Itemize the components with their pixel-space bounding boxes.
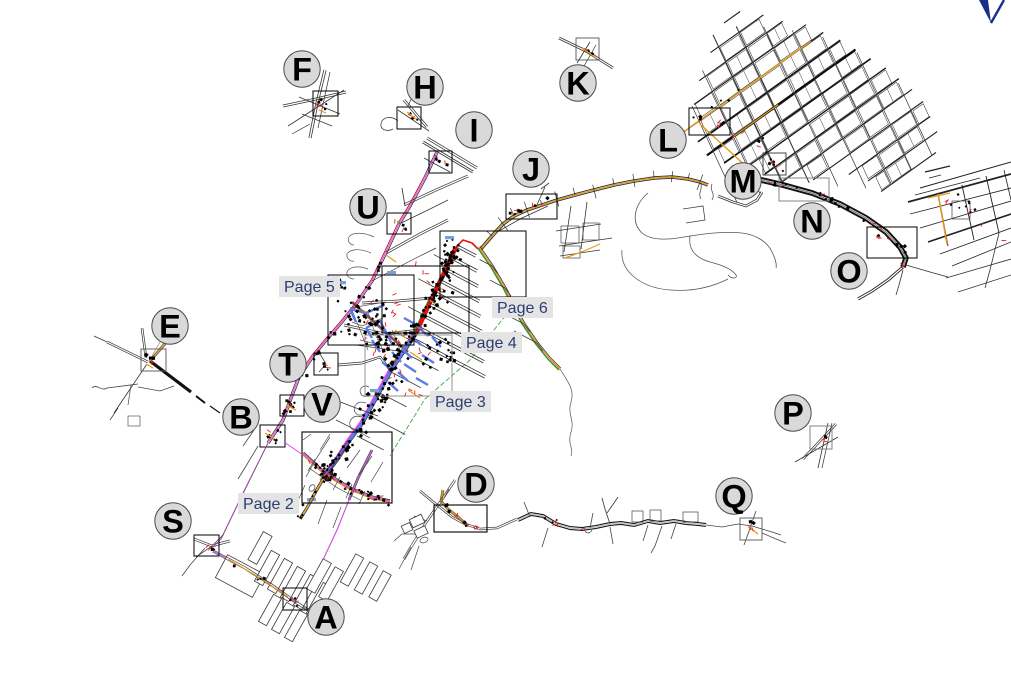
svg-text:H: H [413, 70, 436, 106]
svg-text:N: N [800, 204, 823, 240]
svg-text:D: D [464, 467, 487, 503]
svg-text:V: V [311, 387, 333, 423]
svg-text:B: B [229, 400, 252, 436]
svg-text:Page 4: Page 4 [466, 335, 517, 352]
svg-text:S: S [162, 504, 184, 540]
svg-text:Page 2: Page 2 [243, 496, 294, 513]
svg-text:I: I [469, 113, 478, 149]
svg-text:Q: Q [721, 479, 746, 515]
svg-text:A: A [314, 600, 337, 636]
svg-text:K: K [566, 66, 590, 102]
svg-text:L: L [658, 123, 678, 159]
svg-text:Page 5: Page 5 [284, 279, 335, 296]
svg-text:U: U [356, 190, 379, 226]
svg-text:M: M [729, 164, 756, 200]
svg-text:Page 3: Page 3 [435, 394, 486, 411]
svg-text:O: O [836, 254, 861, 290]
svg-text:P: P [782, 396, 804, 432]
svg-text:T: T [278, 347, 298, 383]
svg-text:J: J [522, 152, 540, 188]
svg-text:E: E [159, 309, 181, 345]
svg-text:Page 6: Page 6 [497, 300, 548, 317]
svg-text:F: F [292, 52, 312, 88]
